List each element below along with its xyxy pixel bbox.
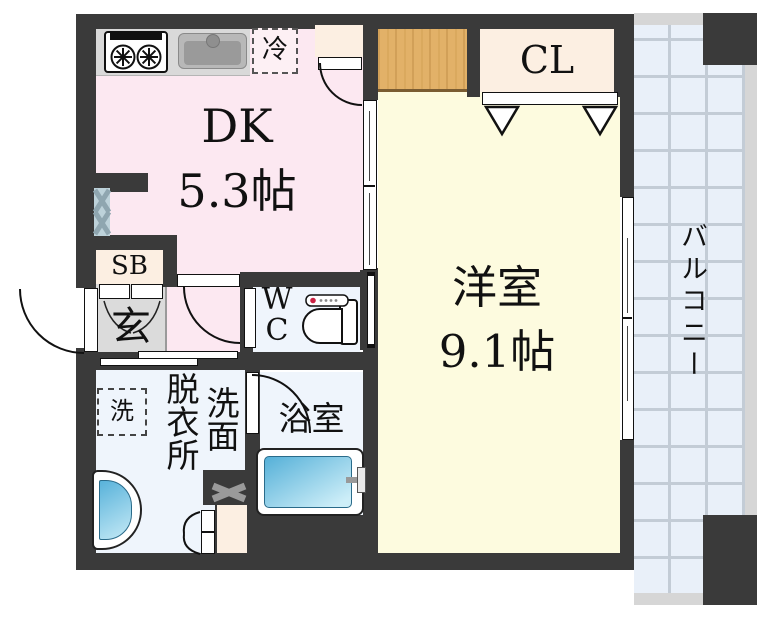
closet-label: CL	[480, 29, 614, 92]
wc-label-c: C	[259, 315, 295, 346]
partition-pocket-track	[367, 272, 375, 348]
ps-duct-left	[94, 188, 110, 236]
floor-plan: バルコニー 冷 CL SB	[0, 0, 770, 620]
wall-left-upper	[76, 14, 96, 288]
balcony-label: バルコニー	[672, 222, 711, 432]
front-door-leaf	[84, 288, 98, 352]
dk-storage	[315, 25, 363, 57]
balcony-edge-top	[634, 13, 703, 25]
dk-door-leaf	[177, 274, 240, 287]
wall-hall-stub	[163, 235, 177, 287]
washroom-folding-door-top	[201, 510, 215, 532]
shoe-box-label: SB	[96, 250, 163, 284]
washstand-label: 洗面	[196, 386, 244, 468]
balcony-window	[622, 197, 634, 440]
front-door-arc	[20, 289, 84, 353]
washroom-folding-door-bottom	[201, 532, 215, 554]
hall-sliding-door-panel-b	[138, 351, 238, 359]
bathtub-basin	[264, 456, 352, 508]
faucet-icon	[206, 34, 220, 48]
wall-bottom	[76, 553, 634, 570]
wc-door-leaf	[244, 288, 256, 348]
washer-label: 洗	[97, 388, 147, 436]
wall-right-lower	[620, 440, 634, 570]
balcony-edge-bottom	[634, 593, 703, 605]
wall-closet-right	[614, 14, 634, 97]
wc-label-w: W	[259, 284, 295, 315]
entrance-label: 玄	[100, 294, 162, 352]
wall-counter-closet-divider	[467, 29, 480, 97]
dk-storage-door	[318, 57, 362, 70]
wall-above-shoebox	[96, 235, 163, 250]
western-room-label: 洋室 9.1帖	[380, 256, 614, 384]
wood-counter	[378, 29, 467, 92]
pillar-top-right	[703, 13, 757, 65]
bathtub-faucet-handle	[357, 467, 366, 493]
utility-storage	[217, 505, 247, 553]
stove-grill-bar	[110, 33, 162, 40]
dk-size: 5.3帖	[112, 159, 362, 224]
wall-bath-bottom	[245, 515, 378, 553]
closet-door-track	[482, 92, 618, 105]
western-room-size: 9.1帖	[380, 320, 614, 384]
bath-door-leaf	[246, 372, 259, 434]
dk-name: DK	[112, 94, 362, 159]
western-room-name: 洋室	[380, 256, 614, 320]
balcony-edge-right	[745, 65, 757, 515]
partition-sliding-door	[363, 100, 377, 270]
refrigerator-label: 冷	[252, 28, 298, 74]
wall-dk-east-top	[363, 29, 378, 100]
dk-label: DK 5.3帖	[112, 94, 362, 225]
bathroom-label: 浴室	[260, 392, 363, 440]
wc-label: W C	[259, 284, 295, 346]
hall-sliding-door-panel-a	[100, 358, 198, 366]
pillar-bottom-right	[703, 515, 757, 605]
hallway	[165, 287, 240, 352]
wall-ps-block	[203, 470, 247, 505]
